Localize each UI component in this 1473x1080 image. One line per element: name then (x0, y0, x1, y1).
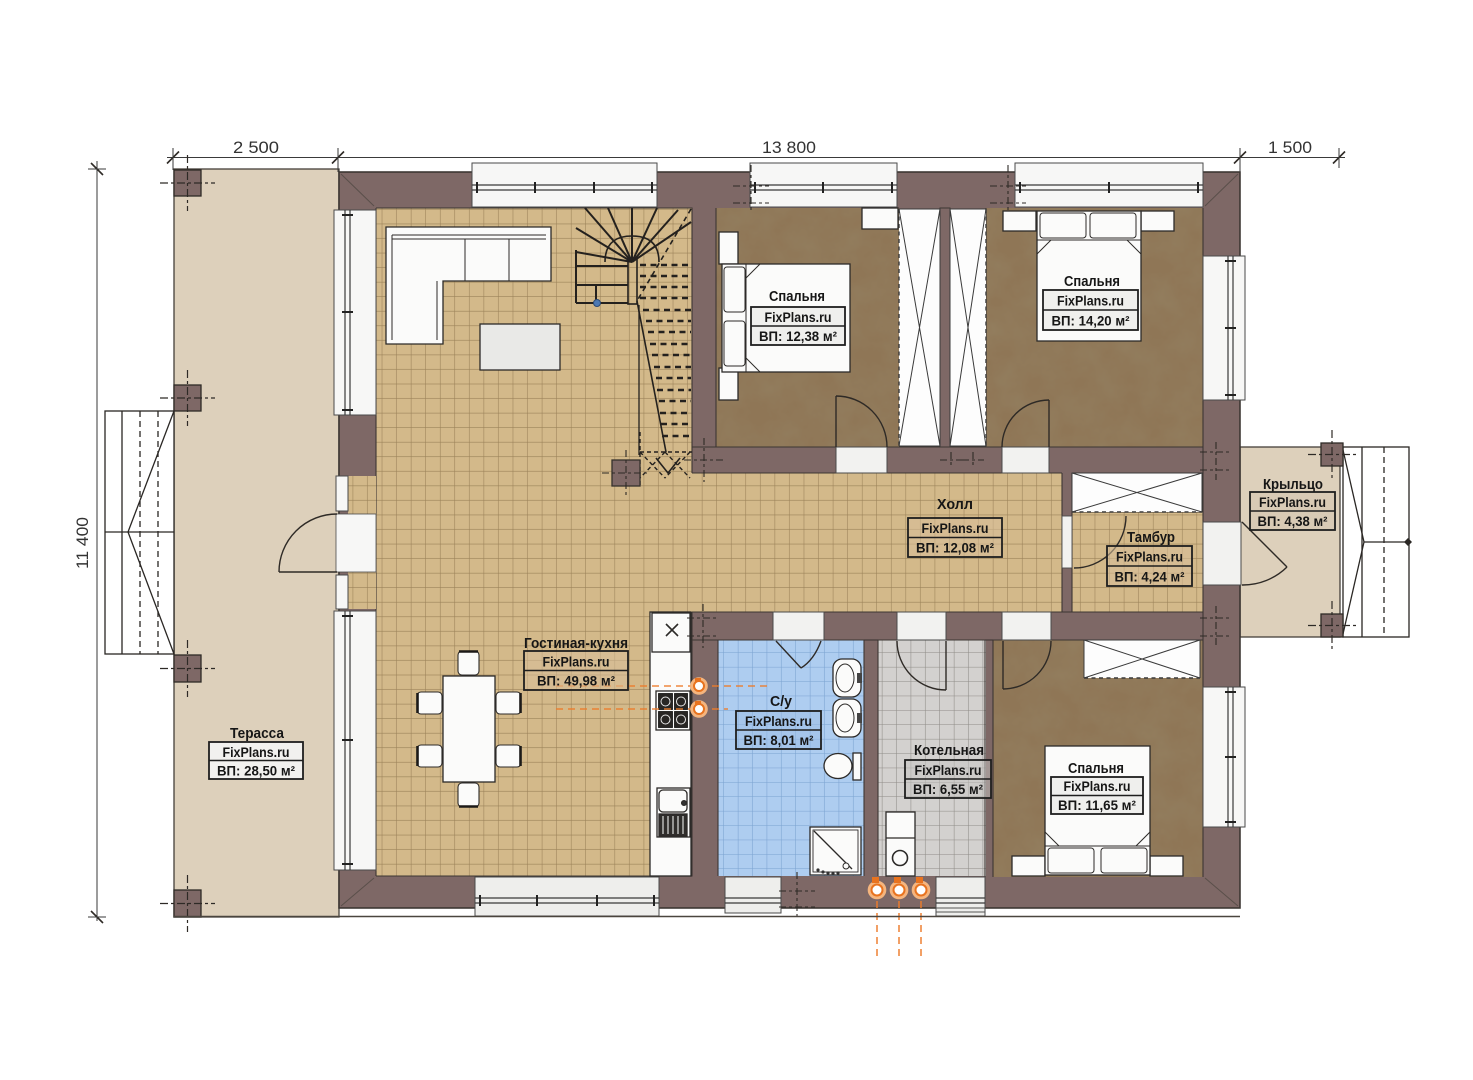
svg-text:Крыльцо: Крыльцо (1263, 477, 1323, 493)
svg-text:FixPlans.ru: FixPlans.ru (1057, 294, 1124, 309)
svg-text:FixPlans.ru: FixPlans.ru (922, 521, 989, 536)
svg-text:С/у: С/у (770, 694, 792, 710)
svg-text:Тамбур: Тамбур (1127, 530, 1175, 546)
svg-text:ВП: 11,65 м²: ВП: 11,65 м² (1058, 798, 1136, 813)
svg-text:ВП: 14,20 м²: ВП: 14,20 м² (1052, 314, 1130, 329)
svg-text:FixPlans.ru: FixPlans.ru (1259, 495, 1326, 510)
svg-text:Спальня: Спальня (769, 289, 825, 305)
svg-text:ВП: 12,38 м²: ВП: 12,38 м² (759, 329, 837, 344)
svg-text:Котельная: Котельная (914, 743, 984, 759)
svg-text:ВП: 6,55 м²: ВП: 6,55 м² (913, 782, 983, 797)
svg-text:ВП: 8,01 м²: ВП: 8,01 м² (744, 733, 814, 748)
svg-text:1 500: 1 500 (1268, 138, 1312, 157)
svg-text:FixPlans.ru: FixPlans.ru (543, 655, 610, 670)
svg-text:ВП: 49,98 м²: ВП: 49,98 м² (537, 674, 615, 689)
svg-text:FixPlans.ru: FixPlans.ru (223, 745, 290, 760)
svg-text:FixPlans.ru: FixPlans.ru (765, 310, 832, 325)
svg-text:ВП: 28,50 м²: ВП: 28,50 м² (217, 764, 295, 779)
svg-text:FixPlans.ru: FixPlans.ru (1116, 550, 1183, 565)
svg-text:ВП: 4,38 м²: ВП: 4,38 м² (1258, 514, 1328, 529)
svg-text:ВП: 4,24 м²: ВП: 4,24 м² (1115, 570, 1185, 585)
svg-text:ВП: 12,08 м²: ВП: 12,08 м² (916, 541, 994, 556)
svg-text:Гостиная-кухня: Гостиная-кухня (524, 636, 628, 652)
svg-text:13 800: 13 800 (762, 138, 816, 157)
svg-text:Холл: Холл (937, 497, 973, 513)
svg-text:FixPlans.ru: FixPlans.ru (745, 714, 812, 729)
svg-text:Терасса: Терасса (230, 726, 285, 742)
svg-text:Спальня: Спальня (1064, 274, 1120, 290)
svg-text:FixPlans.ru: FixPlans.ru (1064, 779, 1131, 794)
svg-text:11 400: 11 400 (73, 517, 92, 569)
svg-text:2 500: 2 500 (233, 138, 279, 157)
svg-text:FixPlans.ru: FixPlans.ru (915, 763, 982, 778)
svg-text:Спальня: Спальня (1068, 761, 1124, 777)
